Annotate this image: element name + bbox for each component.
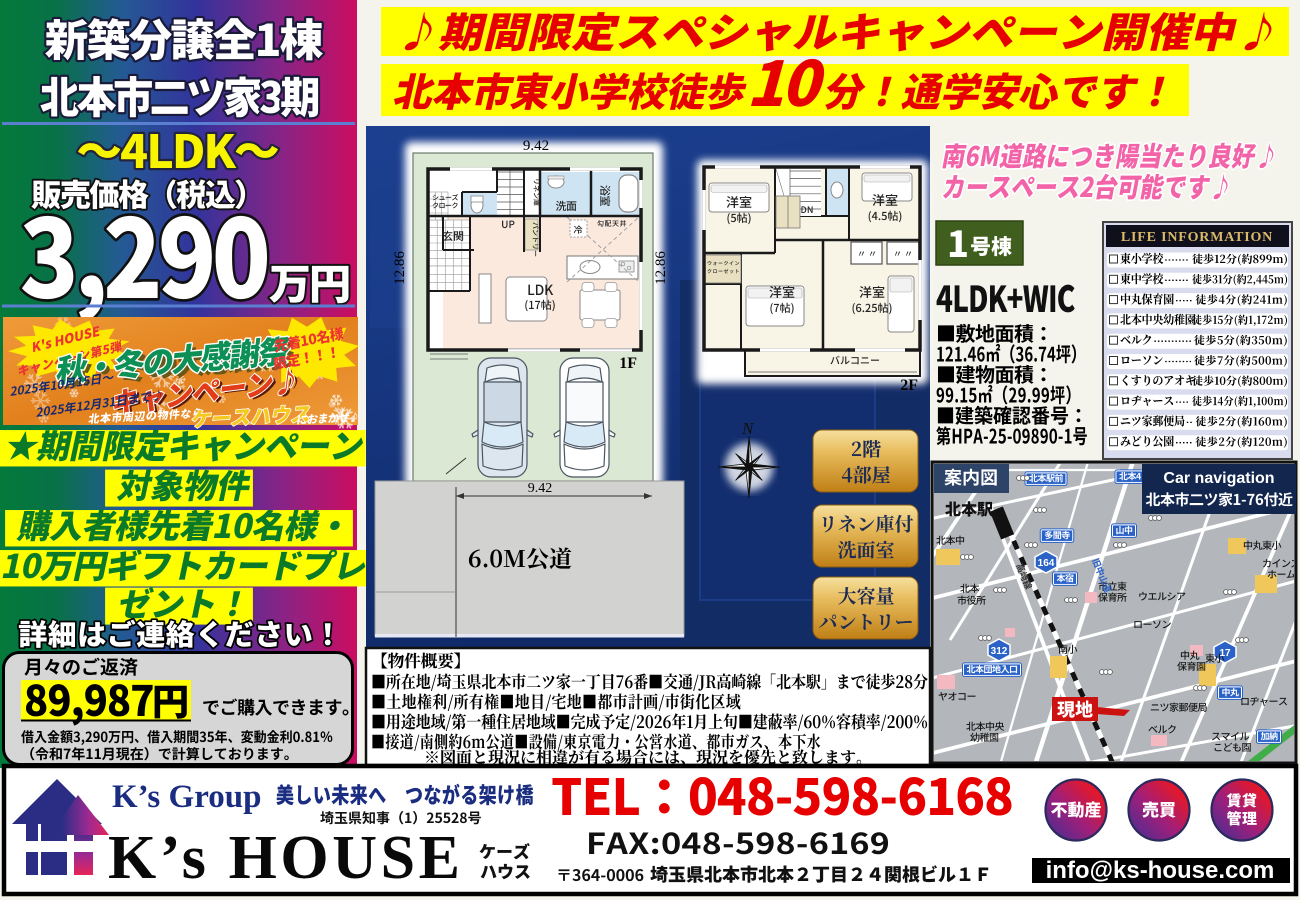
svg-text:9.42: 9.42 [528, 481, 553, 496]
svg-text:Car navigation: Car navigation [1163, 470, 1274, 487]
svg-text:K’s Group: K’s Group [112, 779, 261, 815]
svg-text:12.86: 12.86 [653, 251, 669, 285]
svg-text:info@ks-house.com: info@ks-house.com [1046, 857, 1275, 884]
svg-text:312: 312 [991, 646, 1008, 657]
svg-text:N: N [741, 419, 755, 438]
svg-text:LIFE INFORMATION: LIFE INFORMATION [1121, 230, 1273, 245]
svg-text:1F: 1F [619, 355, 637, 372]
svg-text:17: 17 [1219, 648, 1231, 659]
svg-text:2F: 2F [900, 377, 918, 394]
svg-text:12.86: 12.86 [392, 251, 408, 285]
svg-text:9.42: 9.42 [523, 138, 549, 154]
svg-text:164: 164 [1038, 558, 1055, 569]
svg-text:K’s HOUSE: K’s HOUSE [108, 824, 460, 892]
